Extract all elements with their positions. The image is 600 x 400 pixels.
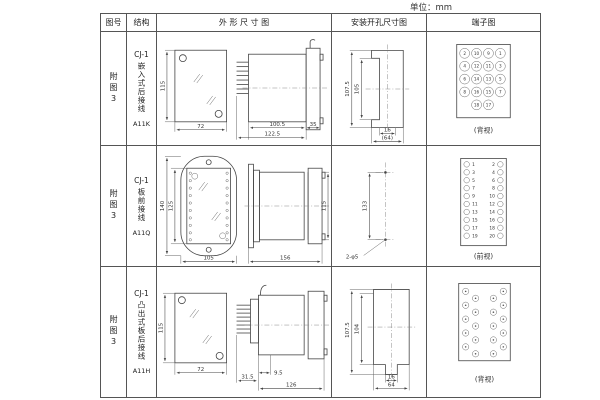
dim-body-length-row1: 100.5 (269, 121, 285, 127)
type-code-row2: A11Q (133, 229, 151, 237)
dim-pin-depth-row3: 31.5 (241, 374, 253, 380)
mounting-cell-row3: 107.5 104 16 64 (332, 267, 427, 398)
terminal-number: 2 (492, 161, 495, 167)
outline-drawing-row1: 115 72 (157, 32, 331, 146)
outline-drawing-row2: 140 125 105 (157, 146, 331, 267)
terminal-number: 17 (486, 102, 492, 107)
dim-slot-width-row3: 16 (388, 374, 395, 380)
mount-type-row1: 嵌入式后接线 (136, 62, 147, 113)
terminal-number: 14 (489, 209, 495, 215)
terminal-dot-columns-icon (189, 171, 228, 240)
terminal-number: 1 (499, 50, 502, 55)
outline-cell-row3: 115 72 (157, 267, 332, 398)
terminal-number: 10 (474, 50, 480, 55)
figure-no-row2: 附图3 (108, 189, 119, 223)
terminal-number: 6 (492, 177, 495, 183)
mounting-hole-icon (384, 171, 387, 174)
dim-front-height-row3: 115 (158, 322, 164, 332)
dim-length-row3: 126 (286, 382, 297, 388)
terminal-number: 15 (472, 217, 478, 223)
mount-type-row3: 凸出式板后接线 (136, 301, 147, 361)
header-mounting: 安装开孔尺寸图 (332, 14, 427, 32)
clip-hook-icon (260, 285, 266, 295)
dim-flange-row1: 35 (310, 121, 317, 127)
mounting-drawing-row2: 133 2-φ5 (332, 146, 426, 267)
figure-cell-row1: 附图3 (101, 32, 127, 146)
dim-outer-height-row2: 140 (160, 200, 166, 211)
terminal-number: 18 (489, 225, 495, 231)
hole-callout-row2: 2-φ5 (346, 254, 358, 260)
page-root: 单位：mm 图号 结构 外 形 尺 寸 图 安装开孔尺寸图 端子图 附图3 CJ… (0, 0, 600, 400)
dim-length-row2: 156 (280, 255, 291, 261)
terminal-number: 7 (472, 185, 475, 191)
dim-front-width-row1: 72 (197, 123, 204, 129)
mounting-cell-row2: 133 2-φ5 (332, 146, 427, 267)
dim-inner-height-row3: 104 (355, 323, 361, 334)
type-code-row1: A11K (133, 120, 150, 128)
figure-no-row1: 附图3 (108, 72, 119, 106)
dim-hole-span-row2: 133 (363, 200, 369, 211)
hatch-marks-icon (194, 74, 216, 105)
mounting-drawing-row1: 107.5 105 16 (64) (332, 32, 426, 146)
spec-table: 图号 结构 外 形 尺 寸 图 安装开孔尺寸图 端子图 附图3 CJ-1 嵌入式… (100, 13, 541, 398)
terminal-number: 4 (492, 169, 495, 175)
dim-outer-height-row1: 107.5 (345, 81, 351, 97)
terminal-number: 13 (486, 76, 492, 81)
header-terminal: 端子图 (427, 14, 541, 32)
type-code-row3: A11H (133, 367, 151, 375)
terminal-number: 9 (472, 193, 475, 199)
terminal-drawing-row2: 1 3 5 7 9 11 13 15 17 19 2 4 6 8 10 12 1 (427, 146, 540, 267)
model-label-row2: CJ-1 (134, 176, 149, 185)
dim-offset-row3: 9.5 (274, 370, 283, 376)
terminal-number: 5 (499, 76, 502, 81)
terminal-circles-row2 (464, 161, 503, 238)
terminal-number: 16 (474, 89, 480, 94)
dim-span-row1: (64) (382, 135, 393, 141)
terminal-pins-icon (237, 305, 251, 333)
terminal-number: 20 (489, 233, 495, 239)
terminal-number: 8 (492, 185, 495, 191)
hatch-marks-icon (199, 182, 221, 221)
terminal-number: 9 (487, 50, 490, 55)
terminal-number: 7 (499, 89, 502, 94)
terminal-numbers-row1: 2 10 9 1 4 12 11 3 6 14 13 5 8 16 15 7 1 (463, 50, 502, 107)
dim-slot-width-row1: 16 (384, 127, 391, 133)
terminal-number: 12 (489, 201, 495, 207)
dim-outer-height-row3: 107.5 (345, 322, 351, 338)
terminal-number: 10 (489, 193, 495, 199)
clip-hook-icon (310, 39, 315, 48)
terminal-drawing-row3: (背视) (427, 267, 540, 398)
dim-front-height-row1: 115 (160, 80, 166, 90)
terminal-number: 17 (472, 225, 478, 231)
mounting-cell-row1: 107.5 105 16 (64) (332, 32, 427, 146)
outline-drawing-row3: 115 72 (157, 267, 331, 398)
dim-inner-height-row2: 125 (168, 200, 174, 210)
view-caption-row1: (背视) (474, 125, 494, 134)
terminal-cell-row1: 2 10 9 1 4 12 11 3 6 14 13 5 8 16 15 7 1 (427, 32, 541, 146)
terminal-number: 19 (472, 233, 478, 239)
model-label-row3: CJ-1 (134, 289, 149, 298)
terminal-number: 12 (474, 63, 480, 68)
terminal-number: 3 (472, 169, 475, 175)
terminal-number: 14 (474, 76, 480, 81)
terminal-number: 11 (472, 201, 478, 207)
terminal-number: 16 (489, 217, 495, 223)
dim-span-row3: 64 (388, 382, 395, 388)
front-view-row1: 115 72 (160, 50, 226, 132)
side-view-row1: 100.5 35 122.5 (237, 39, 328, 139)
terminal-drawing-row1: 2 10 9 1 4 12 11 3 6 14 13 5 8 16 15 7 1 (427, 32, 540, 146)
figure-no-row3: 附图3 (108, 315, 119, 349)
terminal-cell-row2: 1 3 5 7 9 11 13 15 17 19 2 4 6 8 10 12 1 (427, 146, 541, 267)
terminal-number: 4 (463, 63, 466, 68)
dim-front-width-row3: 72 (197, 366, 204, 372)
terminal-number: 3 (499, 63, 502, 68)
mounting-drawing-row3: 107.5 104 16 64 (332, 267, 426, 398)
figure-cell-row2: 附图3 (101, 146, 127, 267)
dim-body-height-row2: 115 (322, 200, 328, 210)
view-caption-row3: (背视) (475, 374, 495, 383)
unit-label: 单位：mm (410, 1, 452, 13)
terminal-number: 1 (472, 161, 475, 167)
outline-cell-row2: 140 125 105 (157, 146, 332, 267)
front-view-row3: 115 72 (158, 293, 226, 375)
model-label-row1: CJ-1 (134, 50, 149, 59)
hatch-marks-icon (190, 309, 212, 344)
terminal-pins-icon (237, 62, 249, 93)
structure-cell-row2: CJ-1 板前接线 A11Q (127, 146, 157, 267)
dim-inner-height-row1: 105 (355, 83, 361, 93)
terminal-number: 5 (472, 177, 475, 183)
header-outline: 外 形 尺 寸 图 (157, 14, 332, 32)
front-view-row2: 140 125 105 (160, 156, 237, 263)
terminal-number: 2 (463, 50, 466, 55)
side-view-row3: 31.5 9.5 126 (237, 285, 329, 390)
terminal-numbers-row2: 1 3 5 7 9 11 13 15 17 19 2 4 6 8 10 12 1 (472, 161, 495, 238)
terminal-number: 18 (474, 102, 480, 107)
outline-cell-row1: 115 72 (157, 32, 332, 146)
dim-front-width-row2: 105 (203, 255, 213, 261)
mount-type-row2: 板前接线 (136, 188, 147, 222)
terminal-cell-row3: (背视) (427, 267, 541, 398)
side-view-row2: 156 115 (244, 164, 329, 263)
terminal-number: 13 (472, 209, 478, 215)
terminal-circles-row3 (462, 288, 506, 357)
figure-cell-row3: 附图3 (101, 267, 127, 398)
terminal-number: 15 (486, 89, 492, 94)
structure-cell-row1: CJ-1 嵌入式后接线 A11K (127, 32, 157, 146)
view-caption-row2: (前视) (474, 251, 494, 260)
dim-overall-length-row1: 122.5 (265, 131, 281, 137)
header-figure: 图号 (101, 14, 127, 32)
header-structure: 结构 (127, 14, 157, 32)
terminal-number: 8 (463, 89, 466, 94)
structure-cell-row3: CJ-1 凸出式板后接线 A11H (127, 267, 157, 398)
terminal-number: 11 (486, 63, 492, 68)
terminal-number: 6 (463, 76, 466, 81)
